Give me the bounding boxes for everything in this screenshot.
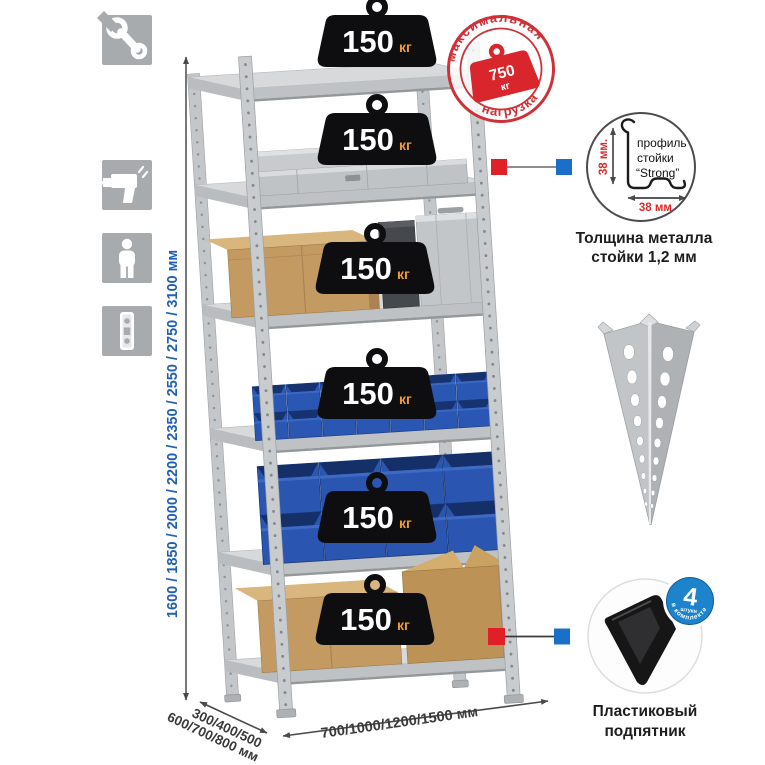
badge-unit: кг [397, 617, 410, 633]
assembly-icons-column [96, 11, 152, 356]
load-badge-4: 150 кг [318, 351, 437, 419]
width-dimension: 700/1000/1200/1500 мм [283, 701, 548, 742]
badge-value: 150 [342, 122, 394, 157]
badge-value: 150 [342, 500, 394, 535]
load-badge-1: 150 кг [318, 0, 437, 67]
width-label: 700/1000/1200/1500 мм [320, 704, 479, 742]
person-icon [102, 233, 152, 283]
profile-dim-vertical: 38 мм. [598, 139, 610, 175]
height-dimension-label: 1600 / 1850 / 2000 / 2200 / 2350 / 2550 … [165, 250, 181, 618]
callout-red-square [488, 628, 505, 645]
rack-foot [277, 709, 296, 718]
post-profile-strip-icon [102, 306, 152, 356]
metal-thickness-caption-2: стойки 1,2 мм [591, 249, 696, 266]
badge-value: 150 [342, 376, 394, 411]
drill-icon [96, 160, 152, 210]
profile-detail-circle: 38 мм. 38 мм. профиль стойки “Strong” [587, 113, 695, 221]
plastic-foot-caption-1: Пластиковый [593, 703, 698, 720]
profile-dim-horizontal: 38 мм. [639, 202, 675, 214]
rack-foot [504, 694, 523, 703]
gloves-icon [111, 87, 148, 131]
depth-dimension: 300/400/500 600/700/800 мм [165, 697, 267, 765]
plastic-foot-caption-2: подпятник [604, 723, 685, 740]
profile-label-1: профиль [637, 136, 687, 150]
max-load-stamp: максимальная нагрузка 750 кг [434, 0, 567, 133]
badge-value: 150 [340, 602, 392, 637]
badge-unit: кг [399, 515, 412, 531]
angle-post-image [598, 314, 700, 525]
wrench-icon [97, 11, 152, 65]
profile-label-3: “Strong” [636, 166, 679, 180]
profile-callout [491, 159, 572, 175]
badge-unit: кг [399, 391, 412, 407]
badge-value: 150 [340, 251, 392, 286]
callout-blue-square [554, 629, 570, 645]
badge-value: 150 [342, 24, 394, 59]
badge-unit: кг [399, 137, 412, 153]
rack-foot [225, 694, 241, 702]
shelving-rack-infographic: 1600 / 1850 / 2000 / 2200 / 2350 / 2550 … [0, 0, 765, 765]
rack-foot [452, 680, 468, 688]
metal-thickness-caption-1: Толщина металла [576, 230, 713, 247]
foot-callout [488, 628, 570, 645]
rear-left-post [187, 73, 238, 697]
profile-label-2: стойки [637, 151, 674, 165]
infographic-drawing: 1600 / 1850 / 2000 / 2200 / 2350 / 2550 … [0, 0, 765, 765]
callout-blue-square [556, 159, 572, 175]
callout-red-square [491, 159, 507, 175]
height-dimension: 1600 / 1850 / 2000 / 2200 / 2350 / 2550 … [165, 57, 186, 700]
badge-unit: кг [399, 39, 412, 55]
badge-unit: кг [397, 266, 410, 282]
